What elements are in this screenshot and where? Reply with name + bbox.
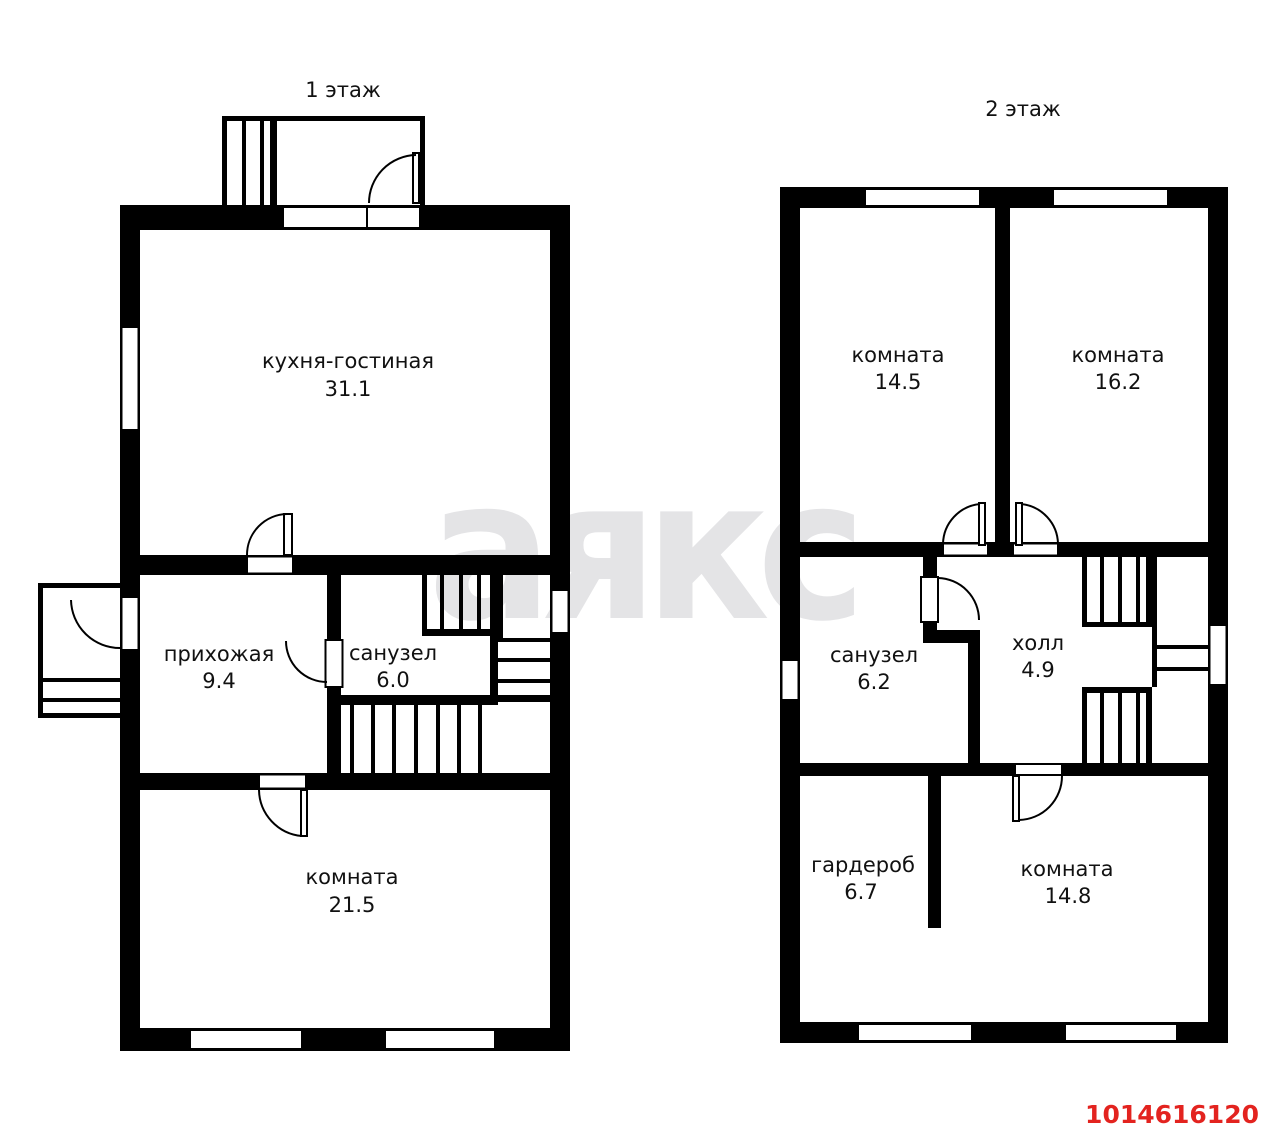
room-area: 14.5	[875, 370, 922, 394]
room-name: холл	[1012, 631, 1064, 655]
window	[385, 1030, 495, 1049]
floor-plan-canvas: аякс	[0, 0, 1280, 1133]
room-area: 4.9	[1021, 658, 1054, 682]
porch-step-line	[242, 120, 246, 205]
window	[283, 207, 367, 228]
bedroom2-door-leaf	[1016, 503, 1022, 545]
bedroom3-door-opening	[1015, 764, 1062, 775]
room-name: санузел	[349, 641, 437, 665]
room-door-leaf	[301, 790, 307, 836]
bathroom2-door-leaf	[921, 577, 938, 622]
bathroom-door-leaf	[326, 640, 343, 687]
room-area: 6.7	[844, 880, 877, 904]
window	[1053, 189, 1168, 206]
kitchen-door-leaf	[284, 514, 292, 555]
floor2-title: 2 этаж	[985, 97, 1061, 121]
window	[552, 590, 569, 633]
window	[190, 1030, 302, 1049]
porch-step-line	[43, 678, 120, 682]
porch-step-line	[260, 120, 264, 205]
room-area: 6.2	[857, 670, 890, 694]
room-name: кухня-гостиная	[262, 349, 434, 373]
porch-step-line	[43, 698, 120, 702]
room-name: комната	[851, 343, 944, 367]
room-area: 9.4	[202, 669, 235, 693]
window	[122, 327, 139, 430]
entry-door-leaf	[413, 153, 419, 203]
floor1-title: 1 этаж	[305, 78, 381, 102]
window	[1210, 625, 1227, 685]
room-area: 14.8	[1045, 884, 1092, 908]
room-area: 21.5	[329, 893, 376, 917]
floor-plan-page: аякс	[0, 0, 1280, 1133]
room-area: 31.1	[325, 377, 372, 401]
room-area: 6.0	[376, 668, 409, 692]
bedroom3-door-leaf	[1013, 776, 1019, 821]
entry-door-opening	[367, 207, 420, 228]
bedroom1-door-leaf	[979, 503, 985, 545]
room-name: гардероб	[811, 853, 915, 877]
room-name: комната	[1020, 857, 1113, 881]
room-name: санузел	[830, 643, 918, 667]
room-name: комната	[305, 865, 398, 889]
room-name: комната	[1071, 343, 1164, 367]
window	[1065, 1024, 1177, 1041]
room-door-opening	[259, 775, 306, 789]
side-door-opening	[122, 597, 139, 650]
porch-step-divider	[270, 120, 277, 205]
window	[858, 1024, 972, 1041]
window	[782, 660, 799, 700]
listing-id: 1014616120	[1085, 1100, 1259, 1129]
room-area: 16.2	[1095, 370, 1142, 394]
window	[865, 189, 980, 206]
room-name: прихожая	[164, 642, 274, 666]
kitchen-door-opening	[247, 557, 293, 574]
